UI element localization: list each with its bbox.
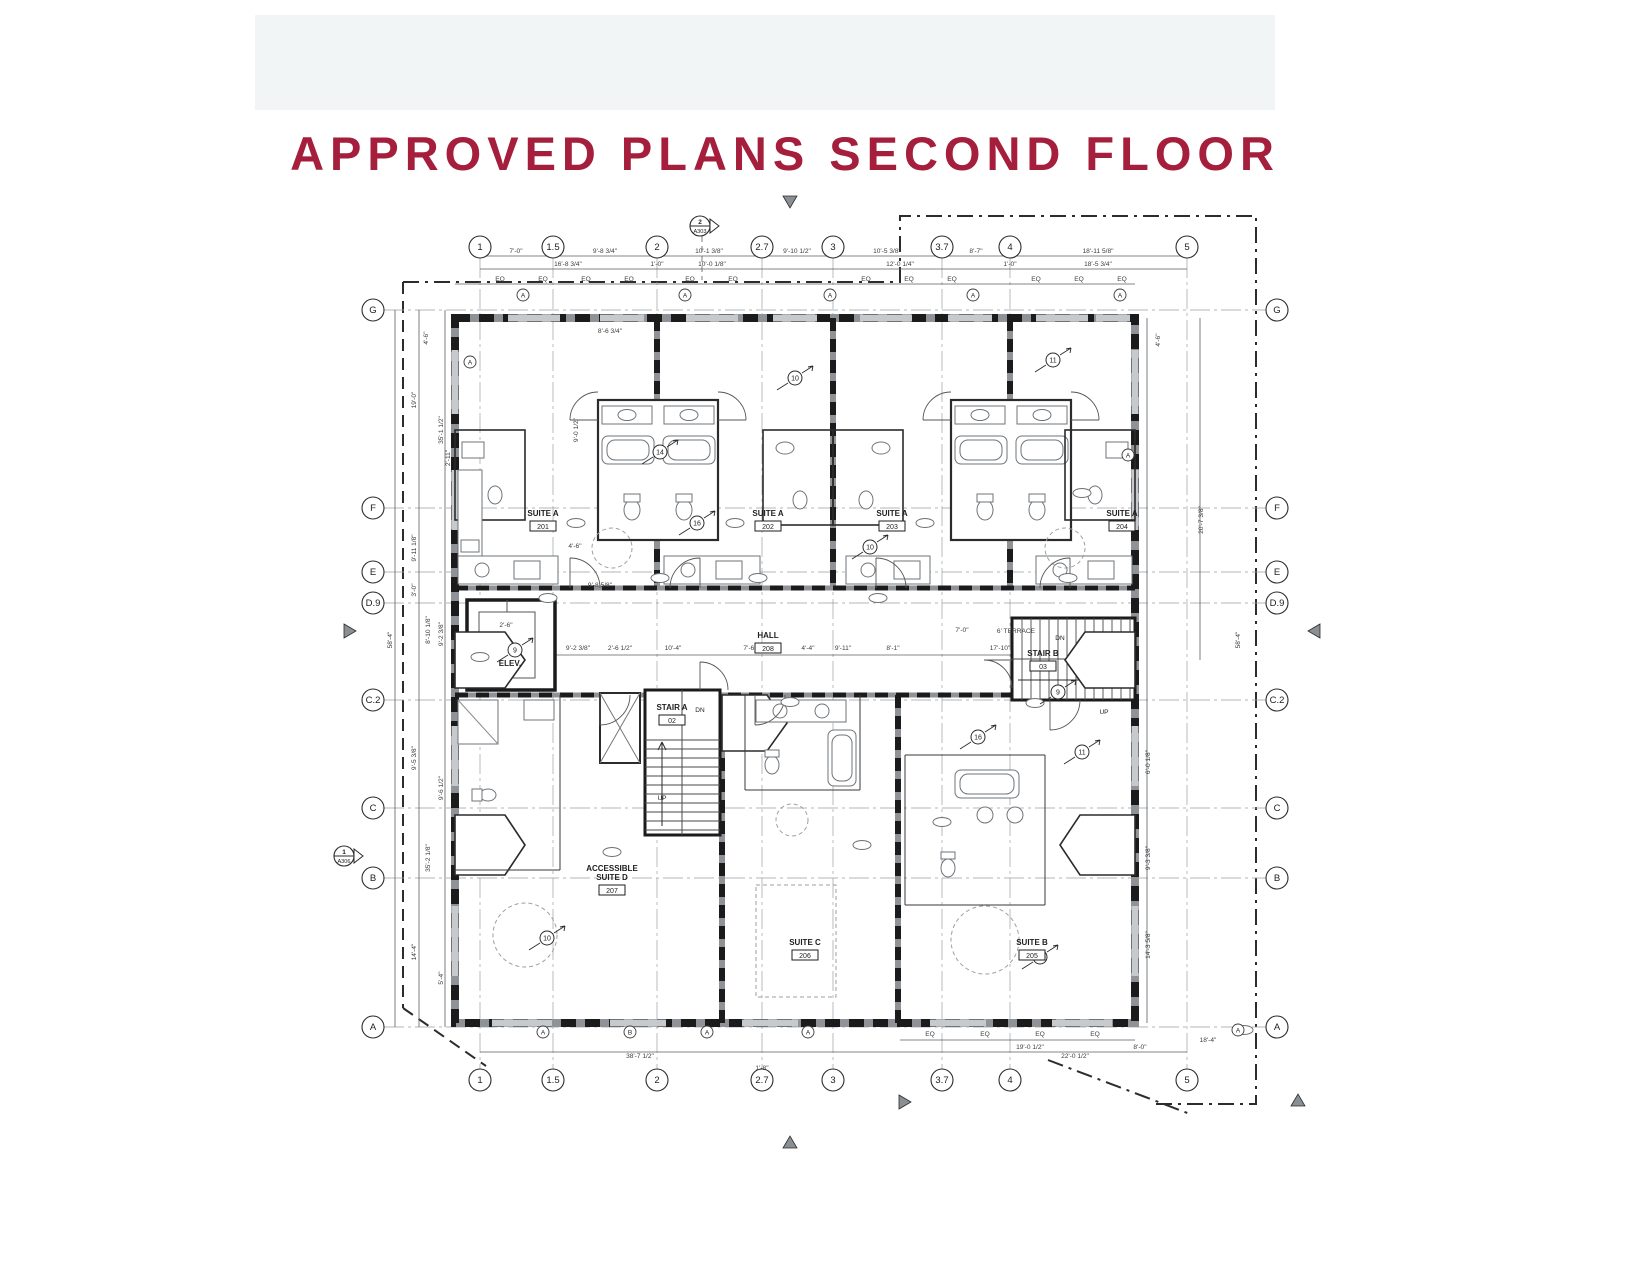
- stair-direction-label: UP: [1099, 709, 1108, 716]
- dimension-label: EQ: [624, 276, 634, 283]
- dimension-label: 9'-5 3/8": [411, 745, 418, 770]
- dimension-label: EQ: [1090, 1031, 1100, 1038]
- section-marker-number: 1: [342, 849, 346, 856]
- dimension-label: 9'-0 1/2": [573, 417, 580, 442]
- suite-b-bath: [905, 755, 1045, 905]
- grid-bubble-label: 5: [1184, 242, 1189, 253]
- dimension-label: 10'-1 3/8": [695, 248, 723, 255]
- dimension-label: 4'-6": [1155, 333, 1162, 347]
- dimension-label: EQ: [1117, 276, 1127, 283]
- dimension-label: 7'-0": [955, 627, 969, 634]
- grid-bubble-label: G: [1273, 305, 1280, 316]
- grid-bubble-label: 4: [1007, 242, 1012, 253]
- dimension-label: 4'-6": [568, 543, 582, 550]
- stair-direction-label: UP: [657, 795, 666, 802]
- grid-bubble-label: B: [1274, 873, 1280, 884]
- room-name: SUITE A: [876, 509, 907, 518]
- dimension-label: EQ: [685, 276, 695, 283]
- furniture-dashed: [493, 528, 1085, 997]
- dimension-label: 4'-6": [423, 331, 430, 345]
- grid-bubble-label: A: [370, 1022, 377, 1033]
- keynote-number: 14: [656, 450, 664, 457]
- dimension-label: 6'-0 1/8": [1145, 749, 1152, 774]
- dimension-label: 1'-8": [755, 1065, 769, 1072]
- dimension-label: 2'-11": [445, 449, 452, 466]
- section-marker-number: 2: [698, 219, 702, 226]
- dimension-label: 14'-4": [411, 943, 418, 960]
- grid-bubble-label: 2: [654, 242, 659, 253]
- room-name: SUITE A: [1106, 509, 1137, 518]
- dimension-label: 4'-4": [801, 645, 815, 652]
- grid-bubble-label: 3.7: [935, 1075, 948, 1086]
- stair-direction-label: DN: [1055, 635, 1065, 642]
- dimension-label: 19'-0": [411, 391, 418, 408]
- dimension-label: 9'-2 3/8": [566, 645, 591, 652]
- room-name: SUITE C: [789, 938, 821, 947]
- room-name: STAIR B: [1027, 649, 1059, 658]
- grid-bubble-label: F: [1274, 503, 1280, 514]
- grid-bubble-label: 5: [1184, 1075, 1189, 1086]
- section-marker-arrow: [354, 849, 363, 863]
- grid-bubble-label: C.2: [366, 695, 381, 706]
- dimension-label: 22'-0 1/2": [1061, 1053, 1089, 1060]
- dimension-label: 2'-6": [499, 622, 513, 629]
- grid-bubble-label: 2.7: [755, 242, 768, 253]
- dimension-label: 38'-7 1/2": [626, 1053, 654, 1060]
- dimension-label: 8'-0": [1133, 1044, 1147, 1051]
- dimension-label: 14'-3 5/8": [1145, 930, 1152, 958]
- keynote-number: 16: [693, 521, 701, 528]
- room-number: 203: [886, 524, 898, 531]
- wall-tag-label: A: [828, 292, 833, 299]
- room-number: 206: [799, 953, 811, 960]
- dimension-label: EQ: [947, 276, 957, 283]
- wall-tag-label: A: [468, 359, 473, 366]
- grid-bubble-label: 3: [830, 1075, 835, 1086]
- room-name: ELEV.: [499, 659, 521, 668]
- wall-tag-label: A: [1118, 292, 1123, 299]
- reference-arrow: [783, 1136, 797, 1148]
- grid-bubble-label: 4: [1007, 1075, 1012, 1086]
- reference-arrow: [899, 1095, 911, 1109]
- section-marker-sheet: A306: [337, 859, 350, 865]
- wall-tag-label: A: [541, 1029, 546, 1036]
- room-name: SUITE A: [527, 509, 558, 518]
- service-shaft: [600, 693, 640, 763]
- dimension-label: 2'-6 1/2": [608, 645, 633, 652]
- dimension-label: EQ: [925, 1031, 935, 1038]
- dimension-label: 35'-2 1/8": [425, 843, 432, 871]
- dimension-label: EQ: [581, 276, 591, 283]
- dimension-label: 9'-6 1/2": [438, 775, 445, 800]
- reference-arrow: [344, 624, 356, 638]
- dimension-label: 58'-4": [1235, 631, 1242, 648]
- keynote-number: 16: [974, 735, 982, 742]
- grid-bubble-label: D.9: [366, 598, 381, 609]
- dimension-label: 8'-7": [969, 248, 983, 255]
- room-name: STAIR A: [656, 703, 687, 712]
- dimension-label: 9'-8 5/8": [588, 582, 613, 589]
- floor-plan-drawing: 111.51.5222.72.7333.73.74455GGFFEED.9D.9…: [0, 0, 1651, 1275]
- grid-bubble-label: A: [1274, 1022, 1281, 1033]
- dimension-label: 16'-8 3/4": [554, 261, 582, 268]
- grid-bubble-label: E: [370, 567, 376, 578]
- dimension-label: 9'-2 3/8": [438, 621, 445, 646]
- dimension-label: EQ: [861, 276, 871, 283]
- dimension-label: EQ: [1035, 1031, 1045, 1038]
- dimension-label: 12'-0 1/4": [886, 261, 914, 268]
- reference-arrow: [1308, 624, 1320, 638]
- grid-bubble-label: 1.5: [546, 1075, 559, 1086]
- keynote-number: 9: [513, 648, 517, 655]
- room-number: 03: [1039, 664, 1047, 671]
- dimension-label: 8'-10 1/8": [425, 615, 432, 643]
- dimension-label: 19'-0 1/2": [1016, 1044, 1044, 1051]
- wall-tag-label: A: [806, 1029, 811, 1036]
- room-name: SUITE A: [752, 509, 783, 518]
- dimension-label: 9'-11": [835, 645, 852, 652]
- dimension-label: 3'-0": [411, 583, 418, 597]
- wall-tag-label: A: [1236, 1027, 1241, 1034]
- grid-bubble-label: 2: [654, 1075, 659, 1086]
- dimension-label: 35'-1 1/2": [438, 415, 445, 443]
- room-name: HALL: [757, 631, 778, 640]
- dimension-label: 1'-0": [1003, 261, 1017, 268]
- bath-cores: [455, 400, 1135, 540]
- room-number: 201: [537, 524, 549, 531]
- dimension-label: EQ: [904, 276, 914, 283]
- section-marker-arrow: [710, 219, 719, 233]
- section-marker-sheet: A303: [693, 229, 706, 235]
- grid-bubble-label: F: [370, 503, 376, 514]
- room-number: 204: [1116, 524, 1128, 531]
- dimension-label: 58'-4": [387, 631, 394, 648]
- grid-bubble-label: C: [370, 803, 377, 814]
- room-number: 205: [1026, 953, 1038, 960]
- grid-bubble-label: 1.5: [546, 242, 559, 253]
- dimension-label: 18'-4": [1200, 1037, 1217, 1044]
- dimension-label: EQ: [538, 276, 548, 283]
- grid-bubble-label: D.9: [1270, 598, 1285, 609]
- grid-bubble-label: 1: [477, 1075, 482, 1086]
- reference-arrow: [1291, 1094, 1305, 1106]
- wall-tag-label: A: [521, 292, 526, 299]
- dimension-label: 7'-0": [509, 248, 523, 255]
- keynote-number: 11: [1049, 358, 1056, 365]
- grid-bubble-label: 2.7: [755, 1075, 768, 1086]
- dimension-label: 18'-11 5/8": [1083, 248, 1115, 255]
- dimension-label: 10'-0 1/8": [698, 261, 726, 268]
- dimension-label: 10'-4": [665, 645, 682, 652]
- reference-arrow: [783, 196, 797, 208]
- dimension-label: 5'-4": [438, 971, 445, 985]
- dimension-label: 6' TERRACE: [997, 628, 1036, 635]
- keynote-number: 10: [866, 545, 874, 552]
- dimension-label: 8'-1": [886, 645, 900, 652]
- dimension-label: EQ: [1031, 276, 1041, 283]
- wall-tag-label: A: [683, 292, 688, 299]
- dimension-label: 8'-6 3/4": [598, 328, 623, 335]
- dimension-label: EQ: [980, 1031, 990, 1038]
- grid-bubble-label: G: [369, 305, 376, 316]
- dimension-label: 9'-11 1/8": [411, 534, 418, 562]
- bath-core-right: [951, 400, 1071, 540]
- keynote-number: 9: [1056, 690, 1060, 697]
- grid-bubble-label: C: [1274, 803, 1281, 814]
- dimension-label: 1'-0": [650, 261, 664, 268]
- grid-bubble-label: 3.7: [935, 242, 948, 253]
- dimension-label: 17'-10": [990, 645, 1011, 652]
- dimension-label: 9'-3 3/8": [1145, 845, 1152, 870]
- dimension-label: EQ: [495, 276, 505, 283]
- grid-bubble-label: 3: [830, 242, 835, 253]
- keynote-number: 10: [791, 376, 799, 383]
- keynote-number: 10: [543, 936, 551, 943]
- room-name: SUITE B: [1016, 938, 1048, 947]
- keynote-number: 11: [1078, 750, 1085, 757]
- room-number: 207: [606, 888, 618, 895]
- grid-bubble-label: E: [1274, 567, 1280, 578]
- wall-tag-label: A: [971, 292, 976, 299]
- dimension-label: 20'-7 3/8": [1198, 505, 1205, 533]
- room-name: ACCESSIBLESUITE D: [586, 864, 638, 882]
- dimension-label: 18'-5 3/4": [1084, 261, 1112, 268]
- wall-tag-label: A: [1126, 452, 1131, 459]
- wall-tag-label: B: [628, 1029, 632, 1036]
- grid-bubble-label: B: [370, 873, 376, 884]
- room-number: 02: [668, 718, 676, 725]
- dimension-label: EQ: [1074, 276, 1084, 283]
- dimension-label: 10'-5 3/8": [873, 248, 901, 255]
- room-number: 208: [762, 646, 774, 653]
- wall-tag-label: A: [705, 1029, 710, 1036]
- dimension-label: 9'-8 3/4": [593, 248, 618, 255]
- stair-direction-label: DN: [695, 707, 705, 714]
- dimension-label: 9'-10 1/2": [783, 248, 811, 255]
- room-number: 202: [762, 524, 774, 531]
- grid-bubble-label: 1: [477, 242, 482, 253]
- dimension-label: EQ: [728, 276, 738, 283]
- grid-bubble-label: C.2: [1270, 695, 1285, 706]
